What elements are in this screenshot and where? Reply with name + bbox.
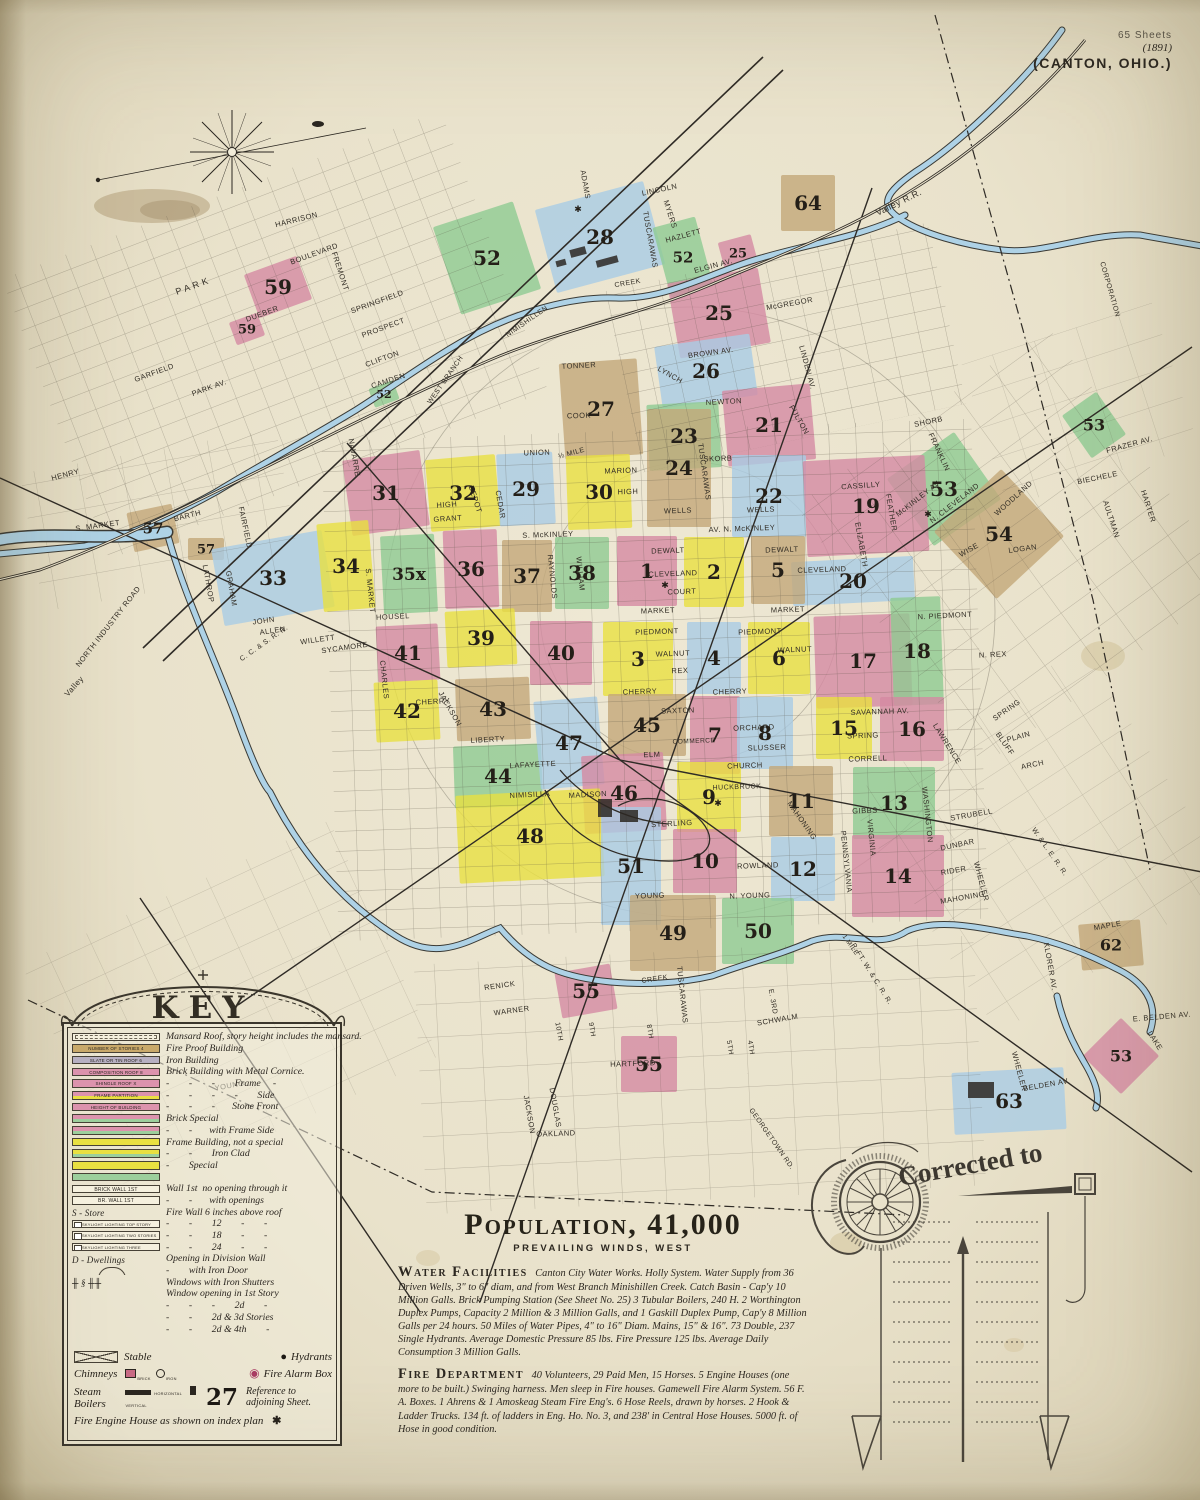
fire-department-paragraph: Fire Department 40 Volunteers, 29 Paid M… xyxy=(398,1366,808,1435)
key-row: ╫ § ╫╫Windows with Iron Shutters xyxy=(72,1276,336,1288)
key-row-label: - Special xyxy=(166,1160,218,1171)
brick-chimney-icon xyxy=(125,1369,136,1378)
key-row-label: Opening in Division Wall xyxy=(166,1253,266,1264)
key-swatch-pinkGreen xyxy=(72,1114,160,1123)
district-number: 53 xyxy=(1110,1047,1132,1066)
district-number: 2 xyxy=(707,560,721,584)
fire-engine-house-icon: ✱ xyxy=(272,1415,281,1427)
district-number: 50 xyxy=(744,919,772,943)
street-label: CLEVELAND xyxy=(648,568,697,579)
district-number: 25 xyxy=(729,247,747,262)
key-row: SKYLIGHT LIGHTING TWO STORIES- - 18 - - xyxy=(72,1230,336,1242)
district-number: 57 xyxy=(197,543,215,558)
key-row: - - with Frame Side xyxy=(72,1125,336,1137)
district-number: 47 xyxy=(555,731,583,755)
key-swatch-sky: SKYLIGHT LIGHTING TWO STORIES xyxy=(72,1231,160,1240)
horizontal-label: HORIZONTAL xyxy=(154,1391,182,1396)
district-number: 55 xyxy=(635,1052,663,1076)
street-label: UNION xyxy=(523,448,550,458)
sheet-city: (CANTON, OHIO.) xyxy=(982,55,1172,71)
key-symbols: Stable ● Hydrants Chimneys BRICK IRON ◉ … xyxy=(74,1351,332,1427)
street-label: LIBERTY xyxy=(470,734,505,745)
steam-boilers-label: Steam Boilers xyxy=(74,1386,119,1410)
district-number: 5 xyxy=(771,558,785,582)
key-row: SLATE OR TIN ROOF 6Iron Building xyxy=(72,1054,336,1066)
key-row-label: - - 24 - - xyxy=(166,1242,267,1253)
key-row-label: Brick Building with Metal Cornice. xyxy=(166,1066,305,1077)
iron-chimney-icon xyxy=(156,1369,165,1378)
key-row: Window opening in 1st Story xyxy=(72,1288,336,1300)
population-title: Population, 41,000 xyxy=(398,1208,808,1242)
fire-department-title: Fire Department xyxy=(398,1366,529,1382)
key-row: - with Iron Door xyxy=(72,1265,336,1277)
key-row-label: - - Iron Clad xyxy=(166,1148,250,1159)
street-label: WELLS xyxy=(664,506,692,516)
sheet-title-block: 65 Sheets (1891) (CANTON, OHIO.) xyxy=(982,30,1172,71)
stable-icon xyxy=(74,1351,118,1363)
district-number: 14 xyxy=(884,864,912,888)
district-number: 59 xyxy=(264,275,292,299)
street-label: PIEDMONT xyxy=(635,626,679,637)
district-number: 62 xyxy=(1100,936,1122,955)
key-row: SHINGLE ROOF X- - - Frame - xyxy=(72,1078,336,1090)
district-number: 32 xyxy=(449,481,477,505)
key-row-label: - - with Frame Side xyxy=(166,1125,274,1136)
key-row-label: - - with openings xyxy=(166,1195,264,1206)
district-number: 1 xyxy=(640,559,654,583)
district-number: 24 xyxy=(665,456,693,480)
street-label: Valley xyxy=(63,674,86,698)
key-swatch-wall: BRICK WALL 1ST xyxy=(72,1185,160,1194)
key-swatch-pinkGreen xyxy=(72,1126,160,1135)
district-number: 38 xyxy=(568,561,596,585)
district-number: 52 xyxy=(473,246,501,270)
key-row: SKYLIGHT LIGHTING TOP STORY ONLY- - 12 -… xyxy=(72,1218,336,1230)
street-label: N. YOUNG xyxy=(729,890,770,900)
water-facilities-title: Water Facilities xyxy=(398,1264,533,1280)
key-swatch-yellow xyxy=(72,1161,160,1170)
key-row-label: - - 2d & 4th - xyxy=(166,1324,269,1335)
street-label: DEWALT xyxy=(765,544,799,554)
district-number: 12 xyxy=(789,857,817,881)
key-swatch-none xyxy=(72,1325,160,1334)
key-row-label: - - - Stone Front xyxy=(166,1101,278,1112)
district-number: 16 xyxy=(898,717,926,741)
key-swatch-yellowGreen xyxy=(72,1149,160,1158)
district-number: 64 xyxy=(794,191,822,215)
district-number: 4 xyxy=(707,646,721,670)
district-number: 33 xyxy=(259,566,287,590)
key-row: S - StoreFire Wall 6 inches above roof xyxy=(72,1206,336,1218)
street-label: JOHN xyxy=(252,615,275,627)
sheet-count: 65 Sheets xyxy=(982,30,1172,41)
key-swatch-none xyxy=(72,1301,160,1310)
fire-engine-house-marker: ✱ xyxy=(574,205,582,215)
district-number: 26 xyxy=(692,359,720,383)
key-row-label: - - 18 - - xyxy=(166,1230,267,1241)
street-label: CHURCH xyxy=(727,760,763,770)
district-number: 34 xyxy=(332,554,360,578)
statistics-block: Population, 41,000 PREVAILING WINDS, WES… xyxy=(398,1208,808,1443)
district-number: 19 xyxy=(852,494,880,518)
key-row: COMPOSITION ROOF 8Brick Building with Me… xyxy=(72,1066,336,1078)
street-label: Valley R.R. xyxy=(874,187,923,218)
key-swatch-pink: COMPOSITION ROOF 8 xyxy=(72,1068,160,1077)
district-number: 52 xyxy=(376,388,391,401)
fire-alarm-label: Fire Alarm Box xyxy=(264,1368,332,1380)
key-swatch-none xyxy=(72,1313,160,1322)
key-row: NUMBER OF STORIES 4Fire Proof Building xyxy=(72,1043,336,1055)
key-row-label: Wall 1st no opening through it xyxy=(166,1183,287,1194)
key-row-label: Mansard Roof, story height includes the … xyxy=(166,1031,362,1042)
key-panel: Mansard Roof, story height includes the … xyxy=(62,1022,342,1446)
key-row-label: Brick Special xyxy=(166,1113,219,1124)
street-label: OAKLAND xyxy=(536,1128,576,1138)
key-row xyxy=(72,1171,336,1183)
key-row-label: - - - - Side xyxy=(166,1090,274,1101)
district-number: 18 xyxy=(903,639,931,663)
district-number: 37 xyxy=(513,564,541,588)
hydrants-label: Hydrants xyxy=(291,1351,332,1363)
key-row: D - DwellingsOpening in Division Wall xyxy=(72,1253,336,1265)
key-arch-ornament: KEY xyxy=(58,966,348,1030)
district-number: 28 xyxy=(586,225,614,249)
street-label: LINCOLN xyxy=(641,181,678,197)
district-number: 8 xyxy=(758,721,772,745)
fire-alarm-icon: ◉ xyxy=(249,1366,259,1381)
vertical-boiler-icon xyxy=(190,1386,196,1395)
key-row-label: Fire Wall 6 inches above roof xyxy=(166,1207,282,1218)
district-number: 7 xyxy=(708,723,722,747)
key-swatch-yellow xyxy=(72,1138,160,1147)
street-label: MARION xyxy=(604,465,637,475)
district-number: 54 xyxy=(985,522,1013,546)
district-number: 29 xyxy=(512,477,540,501)
street-label: HOUSEL xyxy=(376,611,410,622)
iron-label: IRON xyxy=(166,1376,177,1381)
district-number: 44 xyxy=(484,764,512,788)
district-number: 59 xyxy=(238,323,256,338)
street-label: WALNUT xyxy=(656,648,691,658)
water-facilities-text: Canton City Water Works. Holly System. W… xyxy=(398,1268,807,1358)
prevailing-winds: PREVAILING WINDS, WEST xyxy=(398,1243,808,1254)
district-number: 21 xyxy=(755,413,783,437)
key-row-label: - - - Frame - xyxy=(166,1078,276,1089)
district-number: 63 xyxy=(995,1089,1023,1113)
street-label: CHERRY xyxy=(712,686,747,696)
district-number: 25 xyxy=(705,301,733,325)
key-swatch-none xyxy=(72,1290,160,1299)
street-label: DEWALT xyxy=(651,545,685,555)
key-row-label: - - 12 - - xyxy=(166,1218,267,1229)
horizontal-boiler-icon xyxy=(125,1390,151,1395)
district-number: 15 xyxy=(830,716,858,740)
street-label: NEWTON xyxy=(706,396,743,407)
reference-label: Reference to adjoining Sheet. xyxy=(246,1387,332,1408)
key-swatch-sky: SKYLIGHT LIGHTING THREE STORIES xyxy=(72,1243,160,1252)
district-number: 13 xyxy=(880,791,908,815)
key-row-label: - - 2d & 3d Stories xyxy=(166,1312,274,1323)
street-label: REX xyxy=(671,666,688,676)
key-row: BRICK WALL 1STWall 1st no opening throug… xyxy=(72,1183,336,1195)
district-number: 17 xyxy=(849,649,877,673)
district-number: 39 xyxy=(467,626,495,650)
street-label: ADAMS xyxy=(578,169,592,199)
district-number: 3 xyxy=(631,647,645,671)
street-label: N. REX xyxy=(979,649,1007,659)
key-row-label: Window opening in 1st Story xyxy=(166,1288,279,1299)
key-swatch-textonly: S - Store xyxy=(72,1208,160,1217)
key-swatch-mansard xyxy=(72,1033,160,1042)
district-number: 57 xyxy=(143,519,164,537)
key-row: SKYLIGHT LIGHTING THREE STORIES- - 24 - … xyxy=(72,1241,336,1253)
key-row-label: Iron Building xyxy=(166,1055,219,1066)
district-number: 52 xyxy=(673,248,694,266)
key-swatch-pinkYellow: FRAME PARTITION xyxy=(72,1091,160,1100)
street-label: E. BELDEN AV. xyxy=(1132,1009,1191,1023)
district-number: 40 xyxy=(547,641,575,665)
key-row: FRAME PARTITION- - - - Side xyxy=(72,1089,336,1101)
district-number: 48 xyxy=(516,824,544,848)
district-number: 20 xyxy=(839,569,867,593)
key-row: - - 2d & 4th - xyxy=(72,1323,336,1335)
map-sheet: Corrected to ✱✱✱✱ HARRISONBOULEVARDP A R… xyxy=(0,0,1200,1500)
district-number: 6 xyxy=(772,646,786,670)
chimneys-label: Chimneys xyxy=(74,1368,117,1380)
key-swatch-green xyxy=(72,1173,160,1182)
key-title: KEY xyxy=(152,990,255,1026)
street-label: ELM xyxy=(643,750,660,760)
key-row: - - 2d & 3d Stories xyxy=(72,1312,336,1324)
key-row: BR. WALL 1ST- - with openings xyxy=(72,1195,336,1207)
key-row: - - Iron Clad xyxy=(72,1148,336,1160)
district-number: 30 xyxy=(585,480,613,504)
district-number: 23 xyxy=(670,424,698,448)
district-number: 27 xyxy=(587,397,615,421)
district-number: 55 xyxy=(572,979,600,1003)
key-row-label: Frame Building, not a special xyxy=(166,1137,283,1148)
district-number: 42 xyxy=(393,699,421,723)
key-swatch-arc xyxy=(72,1266,160,1275)
key-row: Mansard Roof, story height includes the … xyxy=(72,1031,336,1043)
street-label: YOUNG xyxy=(635,890,665,900)
district-number: 43 xyxy=(479,697,507,721)
street-label: MARKET xyxy=(641,605,676,615)
street-label: HIGH xyxy=(617,487,638,497)
district-number: 51 xyxy=(617,854,645,878)
fire-engine-house-label: Fire Engine House as shown on index plan xyxy=(74,1415,263,1427)
district-number: 49 xyxy=(659,921,687,945)
reference-number: 27 xyxy=(206,1384,238,1411)
key-row-label: - - - 2d - xyxy=(166,1300,267,1311)
district-number: 45 xyxy=(633,713,661,737)
street-label: CORPORATION xyxy=(1098,261,1120,318)
district-number: 53 xyxy=(930,477,958,501)
key-swatch-tan: NUMBER OF STORIES 4 xyxy=(72,1044,160,1053)
street-label: CHERRY xyxy=(622,686,657,696)
sheet-year: (1891) xyxy=(982,42,1172,54)
street-label: S. McKINLEY xyxy=(522,529,574,540)
district-number: 10 xyxy=(691,849,719,873)
key-legend-rows: Mansard Roof, story height includes the … xyxy=(72,1031,336,1335)
street-label: MARKET xyxy=(771,604,806,614)
key-row-label: - with Iron Door xyxy=(166,1265,248,1276)
key-row: - Special xyxy=(72,1160,336,1172)
key-swatch-textonly: ╫ § ╫╫ xyxy=(72,1278,160,1287)
district-number: 46 xyxy=(610,781,638,805)
street-label: TONNER xyxy=(561,360,596,371)
district-number: 41 xyxy=(394,641,422,665)
district-number: 9 xyxy=(702,785,716,809)
district-number: 31 xyxy=(372,481,400,505)
key-swatch-pink: HEIGHT OF BUILDING xyxy=(72,1103,160,1112)
vertical-label: VERTICAL xyxy=(126,1403,147,1408)
district-number: 53 xyxy=(1083,416,1105,435)
district-number: 22 xyxy=(755,484,783,508)
district-number: 36 xyxy=(457,557,485,581)
street-label: PIEDMONT xyxy=(738,626,782,637)
key-swatch-textonly: D - Dwellings xyxy=(72,1255,160,1264)
key-row-label: Windows with Iron Shutters xyxy=(166,1277,274,1288)
key-row: HEIGHT OF BUILDING- - - Stone Front xyxy=(72,1101,336,1113)
key-row: - - - 2d - xyxy=(72,1300,336,1312)
district-number: 35x xyxy=(392,565,427,585)
street-label: SAXTON xyxy=(661,705,695,715)
street-label: GIBBS xyxy=(852,806,878,816)
water-facilities-paragraph: Water Facilities Canton City Water Works… xyxy=(398,1264,808,1359)
street-label: CORRELL xyxy=(848,753,887,763)
key-swatch-pink: SHINGLE ROOF X xyxy=(72,1079,160,1088)
key-row-label: Fire Proof Building xyxy=(166,1043,243,1054)
district-number: 11 xyxy=(787,789,815,813)
key-row: Brick Special xyxy=(72,1113,336,1125)
key-swatch-wall: BR. WALL 1ST xyxy=(72,1196,160,1205)
stable-label: Stable xyxy=(124,1351,152,1363)
hydrant-icon: ● xyxy=(280,1351,287,1363)
street-label: COURT xyxy=(667,586,696,596)
key-row: Frame Building, not a special xyxy=(72,1136,336,1148)
brick-label: BRICK xyxy=(137,1376,150,1381)
street-label: ROWLAND xyxy=(737,860,779,870)
key-swatch-sky: SKYLIGHT LIGHTING TOP STORY ONLY xyxy=(72,1220,160,1229)
key-swatch-gray: SLATE OR TIN ROOF 6 xyxy=(72,1056,160,1065)
